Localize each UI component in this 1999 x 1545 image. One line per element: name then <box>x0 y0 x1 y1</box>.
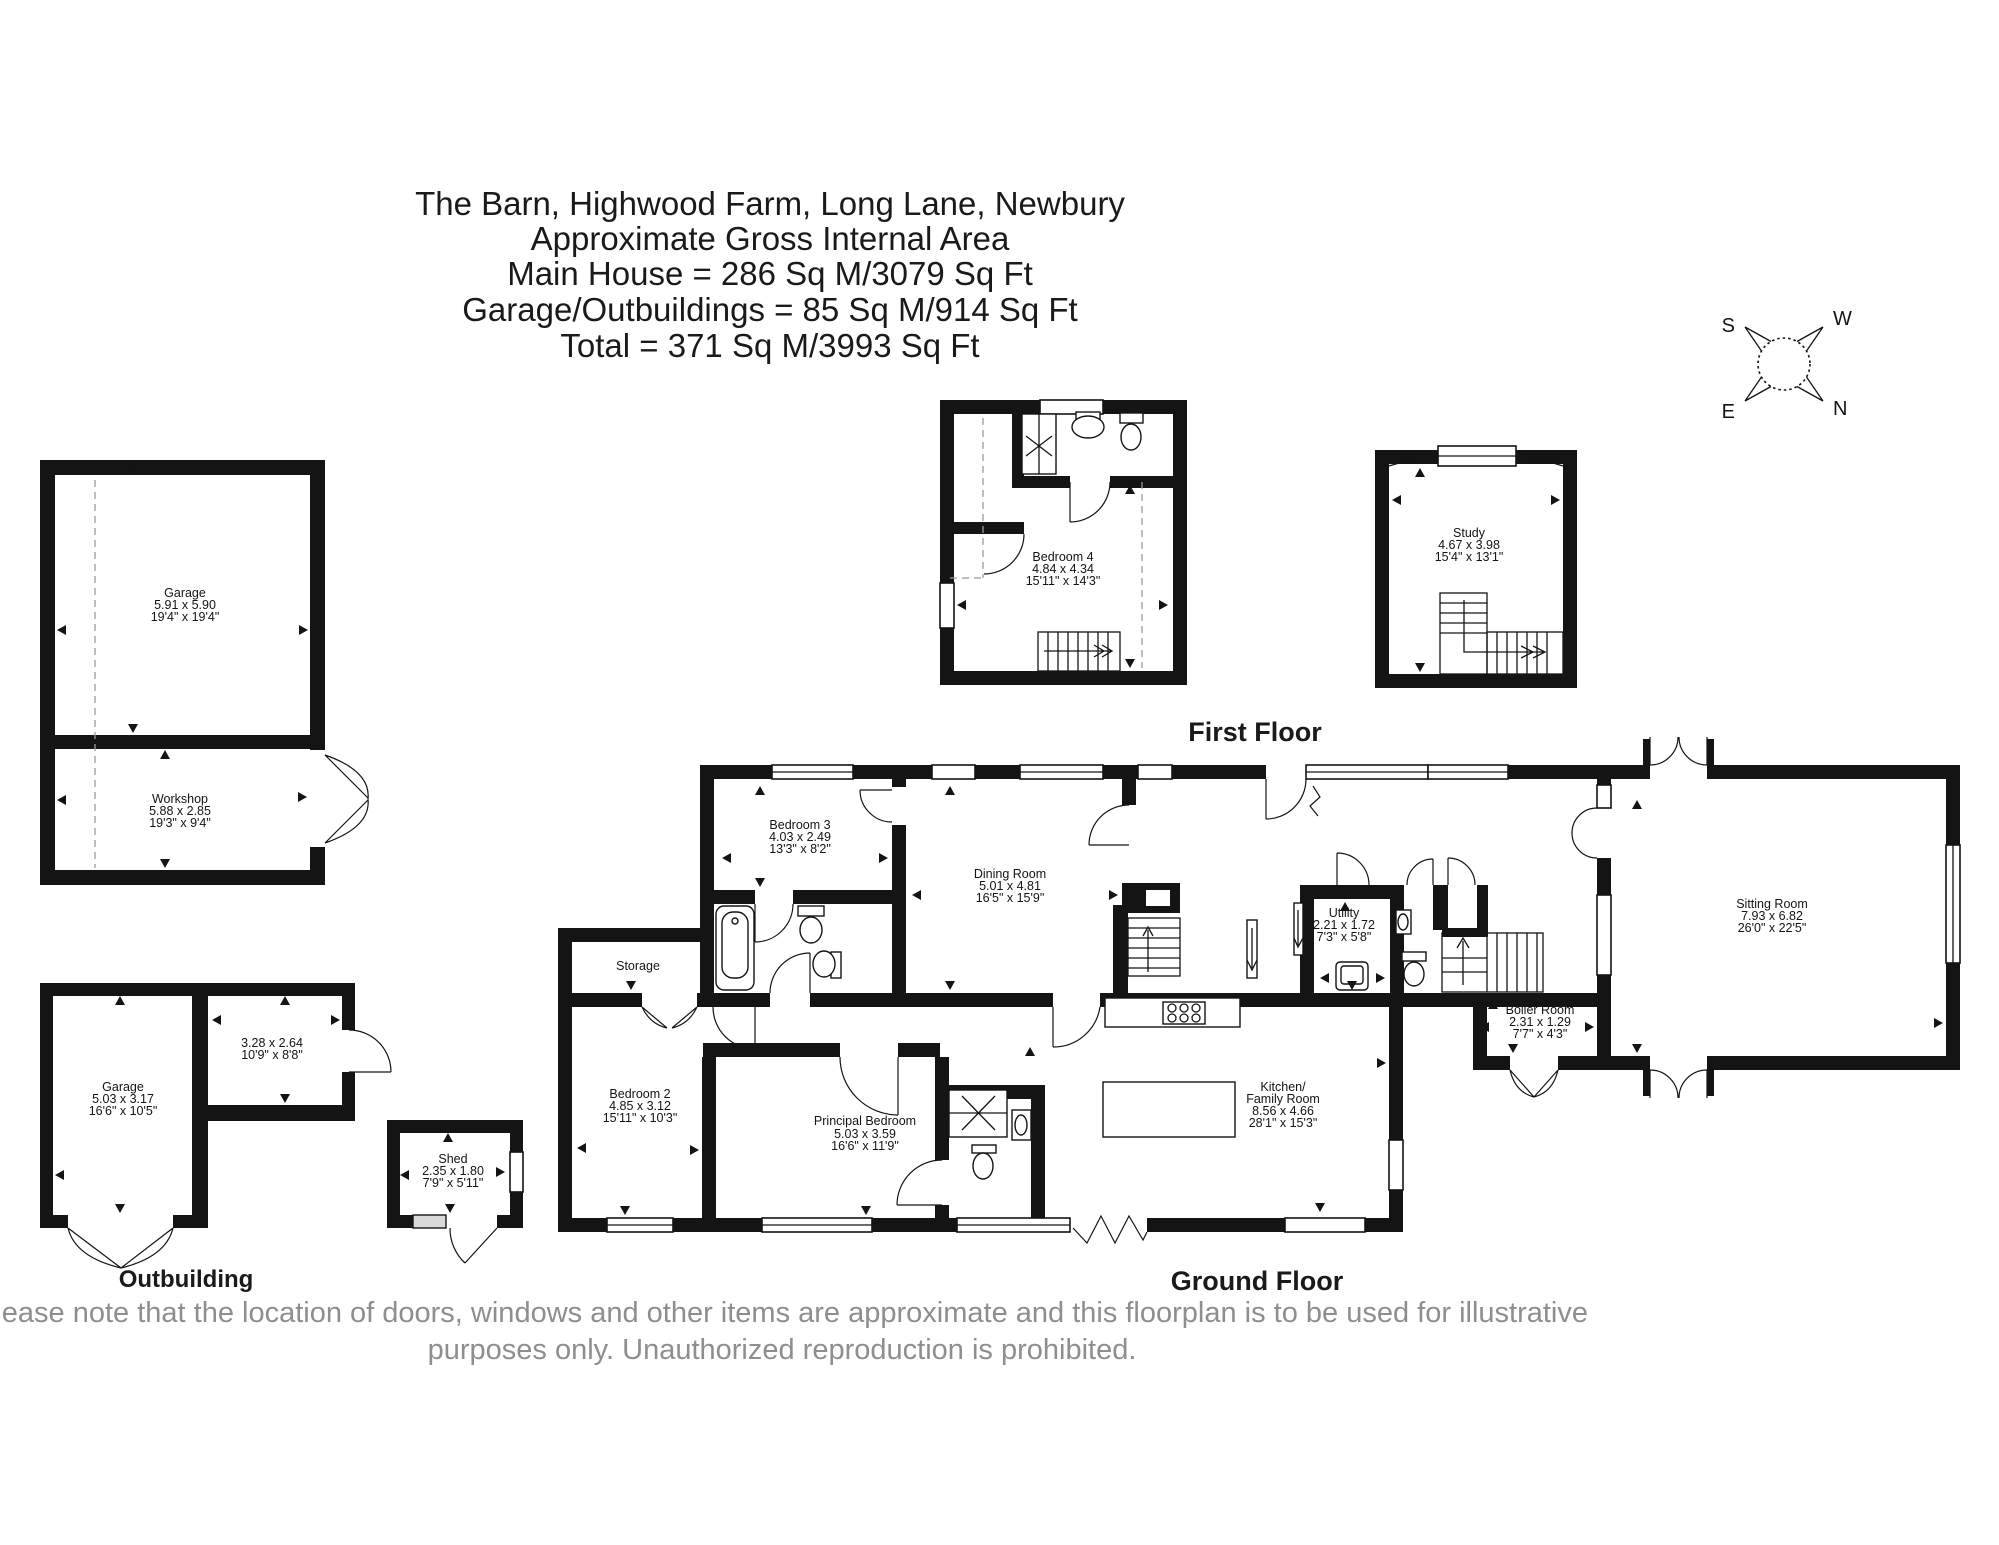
room-dim-imperial: 26'0" x 22'5" <box>1738 921 1807 935</box>
kitchen-island <box>1103 1082 1235 1137</box>
room-dim-imperial: 7'9" x 5'11" <box>423 1176 484 1190</box>
first-floor-heading: First Floor <box>1188 717 1322 747</box>
title-line-5: Total = 371 Sq M/3993 Sq Ft <box>560 327 979 364</box>
compass-rose-icon: S W E N <box>1722 308 1852 423</box>
room-study: Study 4.67 x 3.98 15'4" x 13'1" <box>1375 446 1577 688</box>
room-dim-imperial: 16'6" x 10'5" <box>89 1104 158 1118</box>
disclaimer: Please note that the location of doors, … <box>0 1297 1588 1366</box>
toilet-icon <box>1402 952 1426 986</box>
room-label: Principal Bedroom <box>814 1114 916 1128</box>
outbuilding-garage-workshop: Garage 5.91 x 5.90 19'4" x 19'4" Worksho… <box>40 460 368 885</box>
sink-icon <box>1072 412 1104 438</box>
room-label: Storage <box>616 959 660 973</box>
room-dim-imperial: 15'11" x 10'3" <box>603 1111 678 1125</box>
title-line-4: Garage/Outbuildings = 85 Sq M/914 Sq Ft <box>462 291 1077 328</box>
disclaimer-line-1: Please note that the location of doors, … <box>0 1297 1588 1329</box>
kitchen-counter-hob-icon <box>1105 998 1240 1027</box>
room-dim-imperial: 10'9" x 8'8" <box>241 1048 303 1062</box>
sink-icon <box>813 951 841 978</box>
doors <box>642 737 1707 1243</box>
stairs-study <box>1440 593 1563 674</box>
basin-icon <box>1396 910 1411 934</box>
bath-icon <box>716 906 754 990</box>
title-line-3: Main House = 286 Sq M/3079 Sq Ft <box>507 255 1033 292</box>
room-dim-imperial: 19'3" x 9'4" <box>149 816 211 830</box>
title-line-1: The Barn, Highwood Farm, Long Lane, Newb… <box>415 185 1125 222</box>
outbuilding-heading: Outbuilding <box>119 1266 254 1293</box>
compass-n: N <box>1833 398 1847 420</box>
stairs-first-floor <box>1038 632 1120 671</box>
walls <box>558 739 1960 1232</box>
compass-e: E <box>1722 401 1735 423</box>
toilet-icon <box>1120 413 1143 450</box>
toilet-icon <box>972 1145 996 1179</box>
ground-floor-plan: Bedroom 3 4.03 x 2.49 13'3" x 8'2" Stora… <box>558 737 1960 1243</box>
room-dim-imperial: 19'4" x 19'4" <box>151 610 220 624</box>
room-dim-imperial: 7'3" x 5'8" <box>1317 930 1372 944</box>
room-dim-imperial: 16'6" x 11'9" <box>831 1139 899 1153</box>
shower-icon <box>1022 414 1056 474</box>
outbuilding-shed: Shed 2.35 x 1.80 7'9" x 5'11" <box>387 1120 523 1263</box>
sink-icon <box>1012 1110 1031 1140</box>
stairs-main <box>1442 933 1543 992</box>
compass-w: W <box>1833 308 1852 330</box>
room-dim-imperial: 7'7" x 4'3" <box>1513 1027 1568 1041</box>
title-line-2: Approximate Gross Internal Area <box>531 220 1010 257</box>
room-dim-imperial: 16'5" x 15'9" <box>976 891 1045 905</box>
radiator-icon <box>1247 920 1257 978</box>
outbuilding-garage-store: Garage 5.03 x 3.17 16'6" x 10'5" 3.28 x … <box>40 983 391 1268</box>
room-dim-imperial: 15'11" x 14'3" <box>1026 574 1101 588</box>
radiator-icon <box>1294 903 1303 955</box>
room-dim-imperial: 15'4" x 13'1" <box>1435 550 1504 564</box>
shower-icon <box>949 1090 1007 1137</box>
disclaimer-line-2: purposes only. Unauthorized reproduction… <box>428 1334 1137 1366</box>
ground-floor-heading: Ground Floor <box>1171 1266 1344 1296</box>
stairs-dining <box>1128 918 1180 976</box>
compass-s: S <box>1722 315 1735 337</box>
floorplan-page: The Barn, Highwood Farm, Long Lane, Newb… <box>0 0 1999 1545</box>
floorplan-drawing: The Barn, Highwood Farm, Long Lane, Newb… <box>0 0 1999 1545</box>
title-block: The Barn, Highwood Farm, Long Lane, Newb… <box>415 185 1125 364</box>
room-bedroom4: Bedroom 4 4.84 x 4.34 15'11" x 14'3" <box>940 400 1187 685</box>
toilet-icon <box>798 906 824 943</box>
room-dim-imperial: 28'1" x 15'3" <box>1249 1116 1318 1130</box>
room-dim-imperial: 13'3" x 8'2" <box>769 842 831 856</box>
